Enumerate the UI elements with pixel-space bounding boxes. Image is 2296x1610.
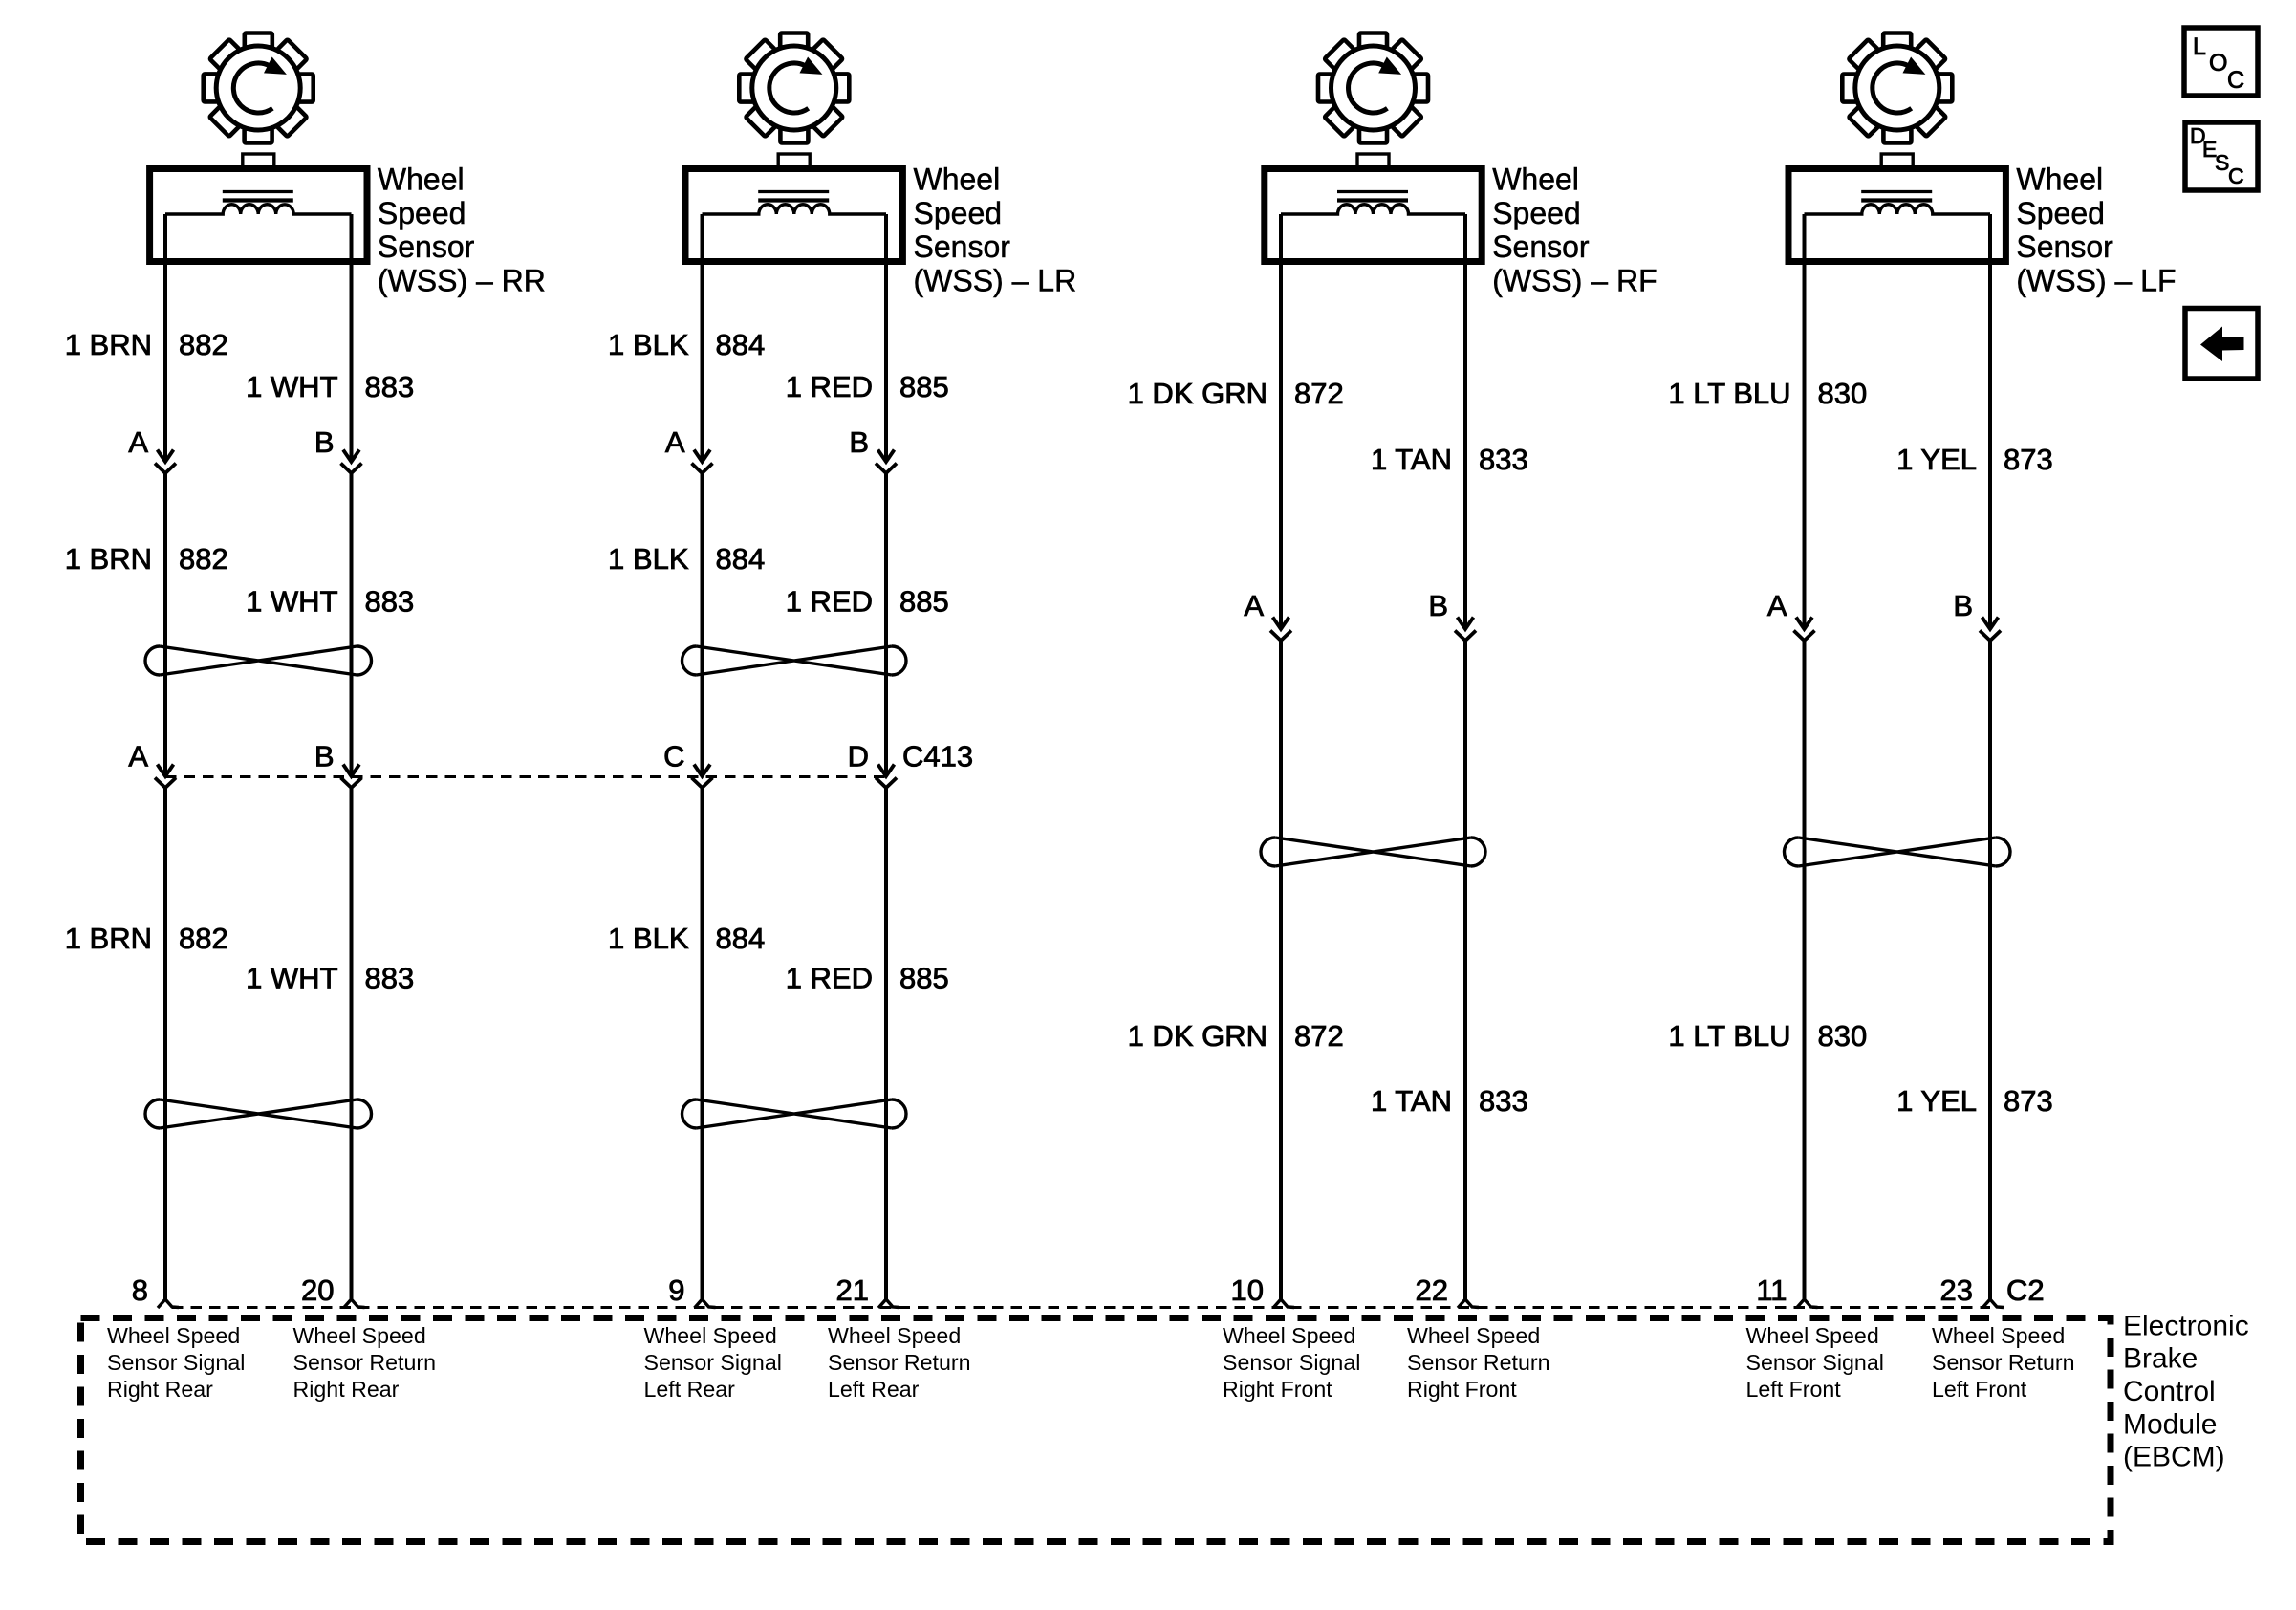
svg-text:Sensor Return: Sensor Return <box>828 1350 971 1375</box>
svg-text:Right Rear: Right Rear <box>293 1377 400 1402</box>
svg-text:Sensor: Sensor <box>378 229 475 264</box>
svg-text:Left Front: Left Front <box>1932 1377 2027 1402</box>
svg-text:10: 10 <box>1231 1273 1264 1307</box>
svg-text:B: B <box>1953 589 1973 622</box>
svg-text:Wheel Speed: Wheel Speed <box>1746 1323 1879 1348</box>
svg-text:B: B <box>849 425 869 459</box>
svg-text:885: 885 <box>899 962 949 995</box>
svg-text:Right Rear: Right Rear <box>107 1377 213 1402</box>
svg-text:884: 884 <box>716 922 766 955</box>
svg-text:Wheel Speed: Wheel Speed <box>293 1323 426 1348</box>
svg-text:Left Rear: Left Rear <box>828 1377 920 1402</box>
svg-text:1 RED: 1 RED <box>786 585 873 619</box>
svg-text:873: 873 <box>2004 443 2053 476</box>
svg-text:1 WHT: 1 WHT <box>246 962 338 995</box>
svg-text:23: 23 <box>1940 1273 1973 1307</box>
svg-text:A: A <box>1767 589 1787 622</box>
svg-text:21: 21 <box>836 1273 869 1307</box>
svg-text:Sensor: Sensor <box>1492 229 1590 264</box>
svg-text:Sensor Return: Sensor Return <box>1932 1350 2075 1375</box>
svg-text:A: A <box>128 740 148 773</box>
svg-text:Wheel: Wheel <box>378 163 465 197</box>
svg-text:Brake: Brake <box>2123 1343 2198 1375</box>
svg-text:L: L <box>2193 33 2206 60</box>
svg-text:Sensor Signal: Sensor Signal <box>107 1350 245 1375</box>
svg-text:1 LT BLU: 1 LT BLU <box>1668 1019 1790 1053</box>
svg-text:833: 833 <box>1479 443 1528 476</box>
svg-text:B: B <box>314 425 335 459</box>
svg-text:1 WHT: 1 WHT <box>246 370 338 403</box>
svg-text:884: 884 <box>716 328 766 361</box>
svg-text:883: 883 <box>365 962 415 995</box>
svg-text:Sensor: Sensor <box>2016 229 2113 264</box>
svg-text:A: A <box>665 425 685 459</box>
svg-text:Wheel Speed: Wheel Speed <box>644 1323 777 1348</box>
svg-text:Wheel Speed: Wheel Speed <box>107 1323 240 1348</box>
svg-text:Right Front: Right Front <box>1407 1377 1517 1402</box>
svg-text:Sensor Signal: Sensor Signal <box>644 1350 782 1375</box>
svg-text:833: 833 <box>1479 1084 1528 1118</box>
svg-text:Speed: Speed <box>914 196 1003 230</box>
svg-text:C: C <box>2227 67 2244 94</box>
svg-text:Wheel Speed: Wheel Speed <box>1223 1323 1355 1348</box>
svg-text:(WSS) – LF: (WSS) – LF <box>2016 263 2176 297</box>
svg-text:Sensor: Sensor <box>914 229 1011 264</box>
svg-text:830: 830 <box>1818 377 1868 410</box>
svg-text:Sensor Return: Sensor Return <box>293 1350 437 1375</box>
svg-text:A: A <box>128 425 148 459</box>
svg-text:1 LT BLU: 1 LT BLU <box>1668 377 1790 410</box>
svg-text:Wheel Speed: Wheel Speed <box>828 1323 961 1348</box>
svg-text:830: 830 <box>1818 1019 1868 1053</box>
svg-text:1 YEL: 1 YEL <box>1896 443 1977 476</box>
svg-text:Wheel: Wheel <box>2016 163 2103 197</box>
svg-text:B: B <box>314 740 335 773</box>
svg-text:Sensor Return: Sensor Return <box>1407 1350 1550 1375</box>
svg-text:O: O <box>2209 50 2227 76</box>
svg-text:872: 872 <box>1294 1019 1344 1053</box>
svg-text:1 TAN: 1 TAN <box>1371 1084 1452 1118</box>
svg-text:1 WHT: 1 WHT <box>246 585 338 619</box>
svg-text:1 RED: 1 RED <box>786 962 873 995</box>
svg-text:Speed: Speed <box>1492 196 1581 230</box>
svg-text:1 BRN: 1 BRN <box>65 922 152 955</box>
svg-text:1 BLK: 1 BLK <box>608 328 689 361</box>
svg-text:883: 883 <box>365 370 415 403</box>
svg-text:873: 873 <box>2004 1084 2053 1118</box>
svg-text:1 BRN: 1 BRN <box>65 542 152 576</box>
svg-text:Left Front: Left Front <box>1746 1377 1842 1402</box>
svg-text:883: 883 <box>365 585 415 619</box>
svg-text:885: 885 <box>899 585 949 619</box>
svg-text:11: 11 <box>1756 1273 1787 1307</box>
svg-text:D: D <box>848 740 869 773</box>
svg-text:885: 885 <box>899 370 949 403</box>
svg-text:1 BLK: 1 BLK <box>608 542 689 576</box>
svg-text:Speed: Speed <box>2016 196 2105 230</box>
svg-text:(WSS) – RF: (WSS) – RF <box>1492 263 1657 297</box>
svg-text:B: B <box>1428 589 1448 622</box>
svg-text:882: 882 <box>179 922 228 955</box>
svg-text:Wheel Speed: Wheel Speed <box>1932 1323 2065 1348</box>
svg-text:Sensor Signal: Sensor Signal <box>1746 1350 1884 1375</box>
svg-text:9: 9 <box>668 1273 684 1307</box>
svg-text:C413: C413 <box>902 740 973 773</box>
svg-text:8: 8 <box>132 1273 148 1307</box>
svg-text:Control: Control <box>2123 1376 2216 1407</box>
svg-text:Wheel: Wheel <box>914 163 1001 197</box>
svg-text:882: 882 <box>179 542 228 576</box>
svg-text:1 BRN: 1 BRN <box>65 328 152 361</box>
svg-text:884: 884 <box>716 542 766 576</box>
svg-text:(WSS) – LR: (WSS) – LR <box>914 263 1077 297</box>
svg-text:Module: Module <box>2123 1408 2217 1440</box>
svg-text:(EBCM): (EBCM) <box>2123 1442 2225 1473</box>
svg-text:Electronic: Electronic <box>2123 1310 2249 1341</box>
svg-text:20: 20 <box>301 1273 334 1307</box>
svg-text:22: 22 <box>1416 1273 1448 1307</box>
svg-text:1 DK GRN: 1 DK GRN <box>1128 1019 1267 1053</box>
svg-text:Sensor Signal: Sensor Signal <box>1223 1350 1360 1375</box>
svg-text:872: 872 <box>1294 377 1344 410</box>
svg-text:Wheel Speed: Wheel Speed <box>1407 1323 1540 1348</box>
svg-text:C2: C2 <box>2006 1273 2045 1307</box>
svg-text:Left Rear: Left Rear <box>644 1377 736 1402</box>
svg-text:C: C <box>663 740 684 773</box>
svg-text:Speed: Speed <box>378 196 466 230</box>
svg-text:1 YEL: 1 YEL <box>1896 1084 1977 1118</box>
svg-text:1 RED: 1 RED <box>786 370 873 403</box>
svg-text:1 DK GRN: 1 DK GRN <box>1128 377 1267 410</box>
svg-text:Right Front: Right Front <box>1223 1377 1332 1402</box>
svg-text:Wheel: Wheel <box>1492 163 1579 197</box>
svg-text:882: 882 <box>179 328 228 361</box>
svg-text:1 TAN: 1 TAN <box>1371 443 1452 476</box>
svg-text:(WSS) – RR: (WSS) – RR <box>378 263 546 297</box>
svg-text:A: A <box>1244 589 1264 622</box>
svg-text:C: C <box>2228 163 2244 188</box>
svg-text:1 BLK: 1 BLK <box>608 922 689 955</box>
